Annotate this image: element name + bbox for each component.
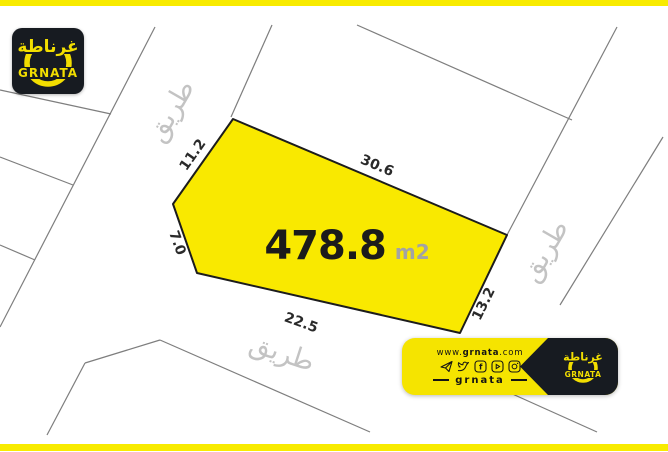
banner-logo-arabic: غرناطة xyxy=(563,351,603,364)
area-unit: m2 xyxy=(395,240,430,264)
youtube-icon xyxy=(491,360,504,373)
website-prefix: www. xyxy=(437,348,463,358)
website-name: grnata xyxy=(463,348,500,358)
telegram-icon xyxy=(440,360,453,373)
logo-latin-text: GRNATA xyxy=(18,66,78,80)
boundary-line-bottom-1 xyxy=(47,363,85,435)
area-value: 478.8 xyxy=(264,223,386,269)
website-url: www.grnata.com xyxy=(437,348,524,358)
boundary-line-left-2 xyxy=(0,157,73,185)
svg-text:f: f xyxy=(479,362,483,371)
boundary-line-top xyxy=(231,25,272,117)
website-suffix: .com xyxy=(499,348,523,358)
boundary-line-bottom-4 xyxy=(508,392,597,432)
boundary-line-left-3 xyxy=(0,245,35,260)
social-icons-row: f xyxy=(440,360,521,373)
banner-logo-latin: GRNATA xyxy=(565,370,602,379)
twitter-icon xyxy=(457,360,470,373)
social-handle: grnata xyxy=(433,375,527,386)
boundary-line-bottom-2 xyxy=(85,340,160,363)
grnata-logo-mark: غرناطة GRNATA xyxy=(12,28,84,94)
boundary-line-top-right xyxy=(357,25,572,120)
instagram-icon xyxy=(508,360,521,373)
banner-logo-mark: غرناطة GRNATA xyxy=(560,346,606,388)
plot-area-label: 478.8 m2 xyxy=(264,223,429,269)
flyer-canvas: 11.2 30.6 13.2 22.5 7.0 طريق طريق طريق 4… xyxy=(0,0,668,452)
banner-grnata-logo: غرناطة GRNATA xyxy=(560,346,606,392)
road-line-right-inner xyxy=(507,27,617,235)
grnata-logo: غرناطة GRNATA xyxy=(12,28,84,94)
contact-banner: www.grnata.com f xyxy=(402,338,618,395)
road-line-right-outer xyxy=(560,137,663,305)
facebook-icon: f xyxy=(474,360,487,373)
logo-arabic-text: غرناطة xyxy=(17,37,78,57)
